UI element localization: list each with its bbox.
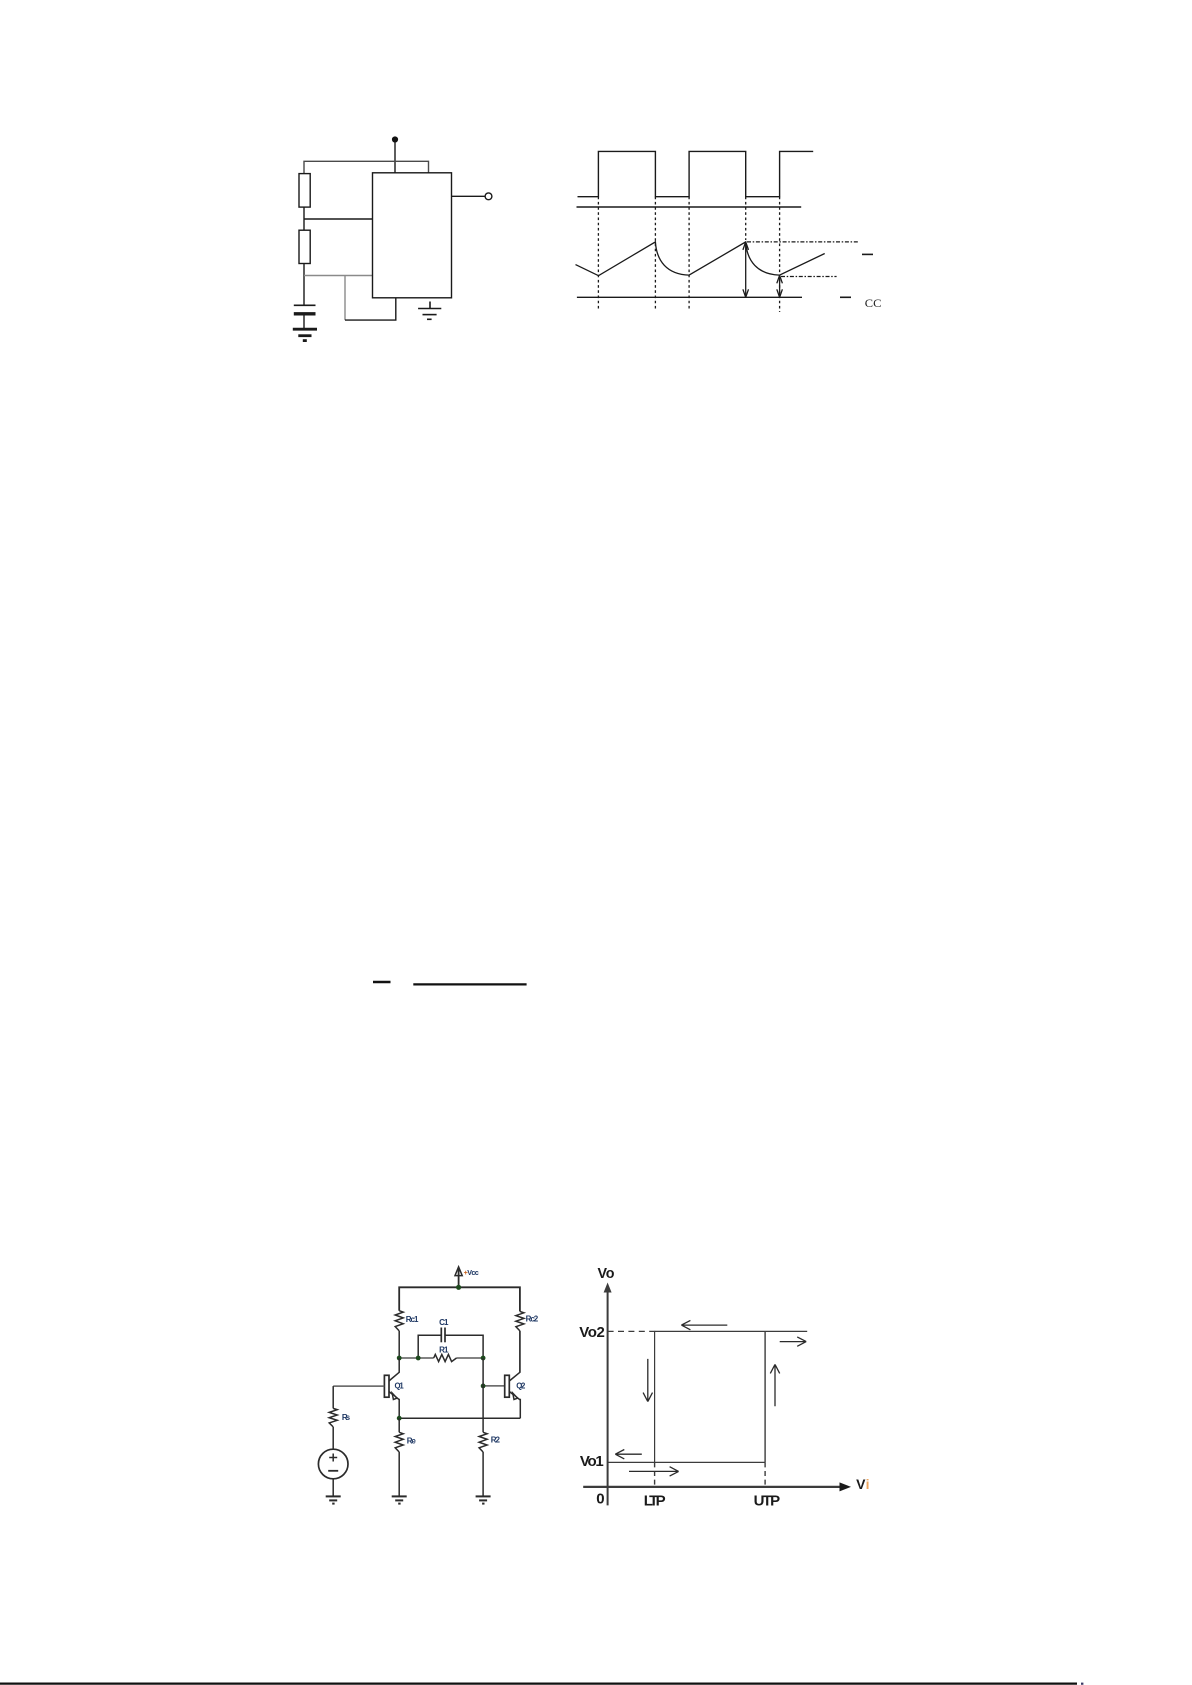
svg-text:Vo1: Vo1 bbox=[580, 1453, 604, 1470]
svg-text:0: 0 bbox=[596, 1491, 604, 1508]
svg-text:Vo2: Vo2 bbox=[579, 1324, 605, 1341]
svg-text:+Vcc: +Vcc bbox=[464, 1268, 479, 1277]
svg-text:UTP: UTP bbox=[754, 1492, 781, 1509]
svg-text:Q2: Q2 bbox=[516, 1382, 526, 1391]
svg-text:i: i bbox=[866, 1476, 870, 1492]
svg-text:R1: R1 bbox=[439, 1345, 449, 1354]
svg-text:V: V bbox=[856, 1476, 866, 1492]
svg-text:Re: Re bbox=[407, 1437, 417, 1446]
svg-text:Rs: Rs bbox=[342, 1413, 351, 1422]
svg-text:Rc1: Rc1 bbox=[406, 1315, 419, 1324]
svg-text:C1: C1 bbox=[439, 1318, 449, 1327]
svg-text:Vo: Vo bbox=[598, 1266, 615, 1282]
svg-text:Q1: Q1 bbox=[395, 1382, 405, 1391]
svg-text:Rc2: Rc2 bbox=[526, 1315, 539, 1324]
svg-text:LTP: LTP bbox=[644, 1492, 666, 1509]
svg-text:R2: R2 bbox=[491, 1436, 501, 1445]
svg-text:CC: CC bbox=[865, 298, 882, 310]
